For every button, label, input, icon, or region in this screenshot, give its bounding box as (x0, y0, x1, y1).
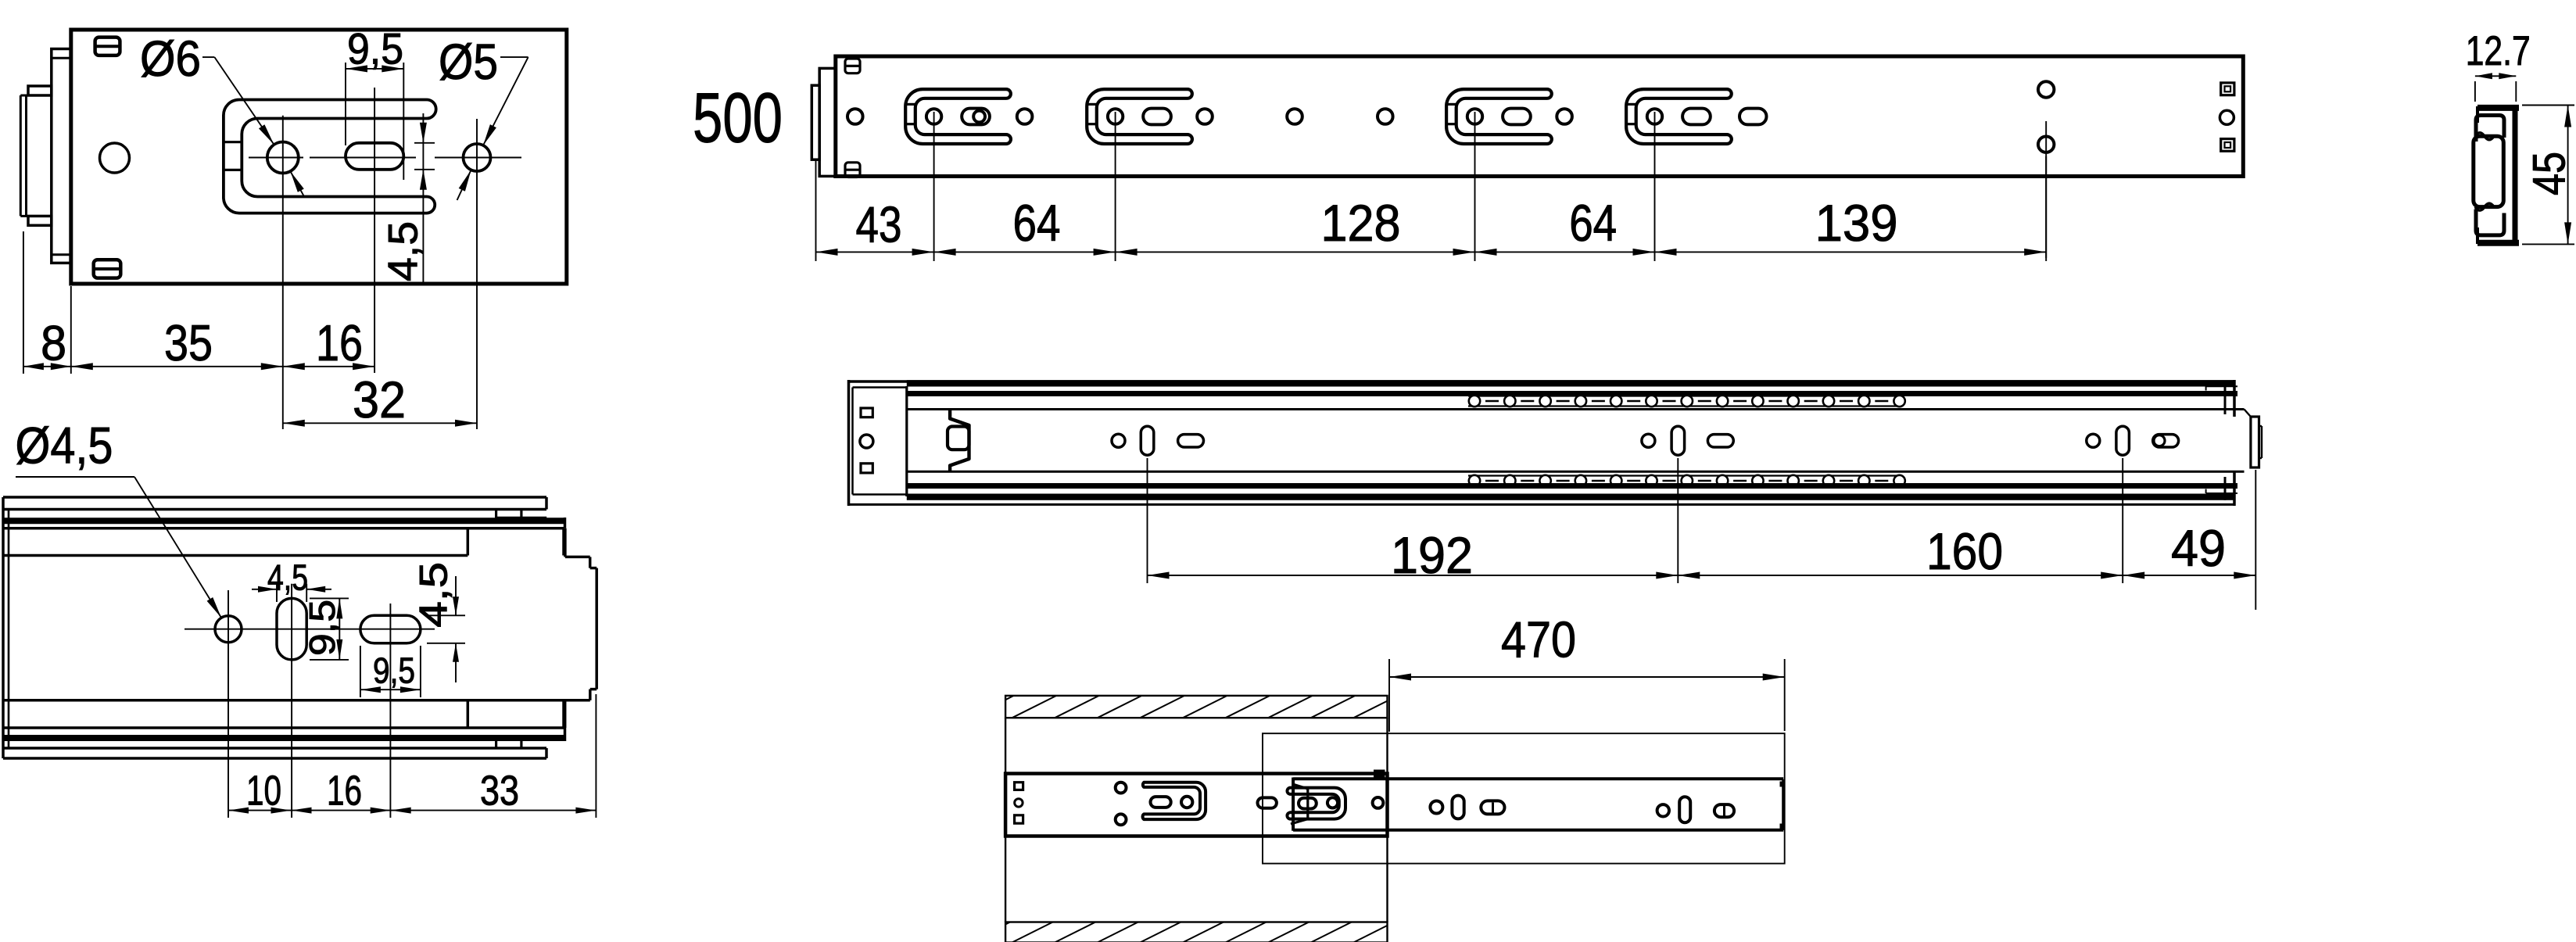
svg-text:470: 470 (1501, 611, 1576, 668)
svg-text:43: 43 (856, 196, 902, 253)
svg-text:128: 128 (1321, 194, 1401, 252)
svg-text:45: 45 (2524, 152, 2575, 195)
svg-text:Ø5: Ø5 (439, 34, 498, 90)
svg-text:64: 64 (1013, 194, 1061, 252)
svg-text:8: 8 (41, 317, 66, 371)
svg-text:4,5: 4,5 (381, 221, 427, 281)
svg-text:139: 139 (1815, 194, 1898, 252)
svg-text:49: 49 (2171, 519, 2226, 577)
svg-text:33: 33 (480, 768, 519, 815)
svg-text:32: 32 (353, 371, 406, 428)
svg-text:500: 500 (693, 80, 783, 158)
svg-text:192: 192 (1391, 526, 1473, 584)
svg-text:9,5: 9,5 (302, 600, 342, 656)
svg-text:Ø4,5: Ø4,5 (16, 417, 113, 475)
svg-text:9,5: 9,5 (373, 650, 415, 691)
svg-text:9,5: 9,5 (347, 24, 403, 73)
svg-text:64: 64 (1569, 194, 1617, 252)
svg-text:16: 16 (316, 314, 363, 371)
svg-text:4,5: 4,5 (267, 557, 308, 598)
svg-text:160: 160 (1926, 522, 2003, 580)
svg-text:12.7: 12.7 (2466, 28, 2531, 74)
svg-text:35: 35 (164, 314, 213, 371)
svg-text:4,5: 4,5 (412, 562, 456, 628)
svg-text:Ø6: Ø6 (140, 30, 201, 87)
svg-text:16: 16 (327, 768, 362, 815)
svg-text:10: 10 (246, 768, 281, 815)
